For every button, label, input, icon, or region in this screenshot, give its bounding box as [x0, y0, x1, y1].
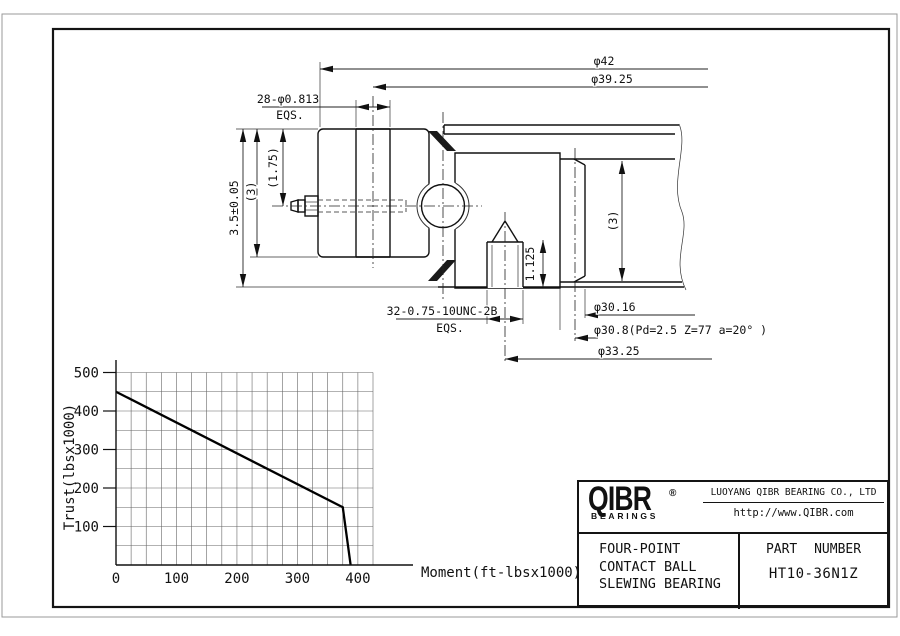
chart-y-tick: 500 — [74, 366, 99, 382]
dim-thread-depth: 1.125 — [523, 247, 537, 282]
chart-xlabel: Moment(ft-lbsx1000) — [421, 565, 581, 581]
drawing-sheet: φ42 φ39.25 28-φ0.813 EQS. 3.5±0.05 (3) (… — [0, 0, 900, 636]
product-line-3: SLEWING BEARING — [599, 576, 738, 594]
company-website: http://www.QIBR.com — [700, 503, 887, 519]
product-description: FOUR-POINT CONTACT BALL SLEWING BEARING — [579, 534, 740, 609]
dim-gear-tip: φ30.16 — [594, 300, 636, 314]
product-line-1: FOUR-POINT — [599, 541, 738, 559]
chart-x-tick: 400 — [345, 571, 370, 587]
title-block-header: QIBR® BEARINGS LUOYANG QIBR BEARING CO.,… — [579, 482, 887, 534]
technical-drawing: φ42 φ39.25 28-φ0.813 EQS. 3.5±0.05 (3) (… — [227, 54, 767, 364]
chart-x-tick: 100 — [164, 571, 189, 587]
dim-height-outer: (3) — [244, 182, 258, 203]
title-block: QIBR® BEARINGS LUOYANG QIBR BEARING CO.,… — [577, 480, 889, 607]
logo-text: QIBR — [588, 484, 651, 514]
dim-height-total: 3.5±0.05 — [227, 180, 241, 235]
part-number-cell: PART NUMBER HT10-36N1Z — [740, 534, 887, 609]
dim-thread-circle: φ33.25 — [598, 344, 640, 358]
chart-ylabel: Trust(lbsx1000) — [62, 404, 78, 530]
dim-height-inner: (3) — [606, 211, 620, 232]
break-line — [677, 124, 686, 290]
dim-mount-holes-eqs: EQS. — [276, 108, 304, 122]
chart-curve — [116, 392, 351, 565]
dim-gear-pitch: φ30.8(Pd=2.5 Z=77 a=20° ) — [594, 323, 767, 337]
part-number-label: PART NUMBER — [740, 542, 887, 557]
dim-thread-holes-eqs: EQS. — [436, 321, 464, 335]
part-number-value: HT10-36N1Z — [740, 566, 887, 582]
title-block-body: FOUR-POINT CONTACT BALL SLEWING BEARING … — [579, 534, 887, 609]
registered-mark-icon: ® — [669, 488, 676, 499]
company-info: LUOYANG QIBR BEARING CO., LTD http://www… — [700, 482, 887, 532]
dim-mount-holes: 28-φ0.813 — [257, 92, 319, 106]
dim-height-to-center: (1.75) — [266, 147, 280, 189]
dim-outer-dia: φ42 — [594, 54, 615, 68]
seal-bottom — [428, 260, 456, 281]
company-name: LUOYANG QIBR BEARING CO., LTD — [703, 487, 884, 503]
load-chart: 0100200300400100200300400500 Moment(ft-l… — [62, 360, 581, 587]
product-line-2: CONTACT BALL — [599, 559, 738, 577]
dim-thread-holes: 32-0.75-10UNC-2B — [387, 304, 498, 318]
company-logo: QIBR® BEARINGS — [579, 482, 700, 532]
chart-x-tick: 0 — [112, 571, 120, 587]
chart-grid — [116, 373, 373, 566]
dim-bolt-circle: φ39.25 — [591, 72, 633, 86]
chart-x-tick: 200 — [224, 571, 249, 587]
chart-x-tick: 300 — [285, 571, 310, 587]
